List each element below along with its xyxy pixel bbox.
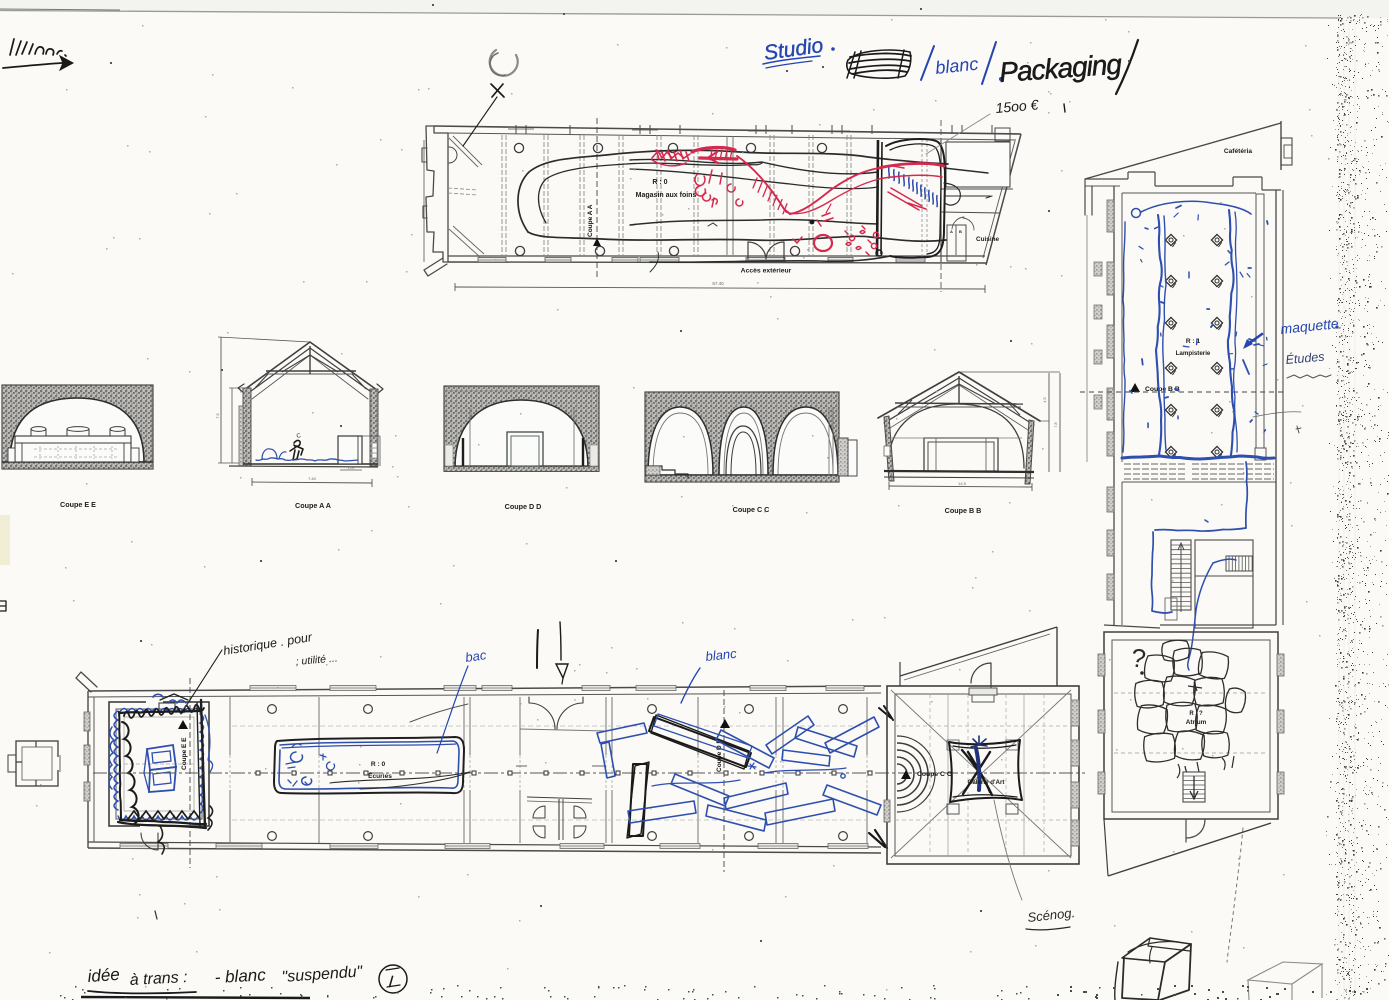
svg-text:Lampisterie: Lampisterie (1176, 350, 1211, 357)
svg-text:Coupe C C: Coupe C C (733, 505, 770, 514)
svg-text:14.5: 14.5 (958, 481, 967, 486)
svg-text:idée: idée (87, 965, 120, 986)
svg-text:Cafétéria: Cafétéria (1224, 148, 1253, 155)
svg-text:Écuries: Écuries (368, 771, 392, 780)
svg-text:Coupe E E: Coupe E E (181, 737, 188, 770)
svg-text:Coupe B B: Coupe B B (945, 506, 982, 515)
svg-text:1.00: 1.00 (348, 466, 355, 470)
svg-text:bac: bac (464, 647, 487, 665)
svg-text:Coupe D D: Coupe D D (505, 502, 542, 511)
svg-text:Galerie d'Art: Galerie d'Art (968, 779, 1005, 786)
svg-text:Cuisine: Cuisine (976, 236, 1000, 243)
svg-text:Coupe C C: Coupe C C (917, 771, 952, 778)
svg-text:R : 0: R : 0 (371, 761, 386, 768)
svg-text:à trans :: à trans : (129, 969, 188, 989)
svg-text:7.40: 7.40 (308, 476, 317, 481)
svg-text:R : 0: R : 0 (652, 179, 667, 186)
svg-text:7.8: 7.8 (1054, 422, 1058, 427)
svg-text:R : 1: R : 1 (1186, 338, 1201, 345)
svg-text:57.40: 57.40 (712, 281, 724, 286)
svg-text:4.5: 4.5 (1043, 397, 1047, 402)
svg-text:A: A (950, 229, 953, 234)
svg-text:Magasin aux foins: Magasin aux foins (636, 192, 697, 199)
svg-text:Accès extérieur: Accès extérieur (741, 268, 792, 275)
svg-text:Coupe E E: Coupe E E (60, 500, 96, 509)
svg-text:Coupe A A: Coupe A A (295, 501, 331, 510)
svg-text:7.5: 7.5 (215, 412, 220, 418)
svg-text:Coupe A A: Coupe A A (587, 204, 594, 237)
svg-text:- blanc: - blanc (214, 965, 266, 987)
svg-text:B: B (959, 229, 962, 234)
